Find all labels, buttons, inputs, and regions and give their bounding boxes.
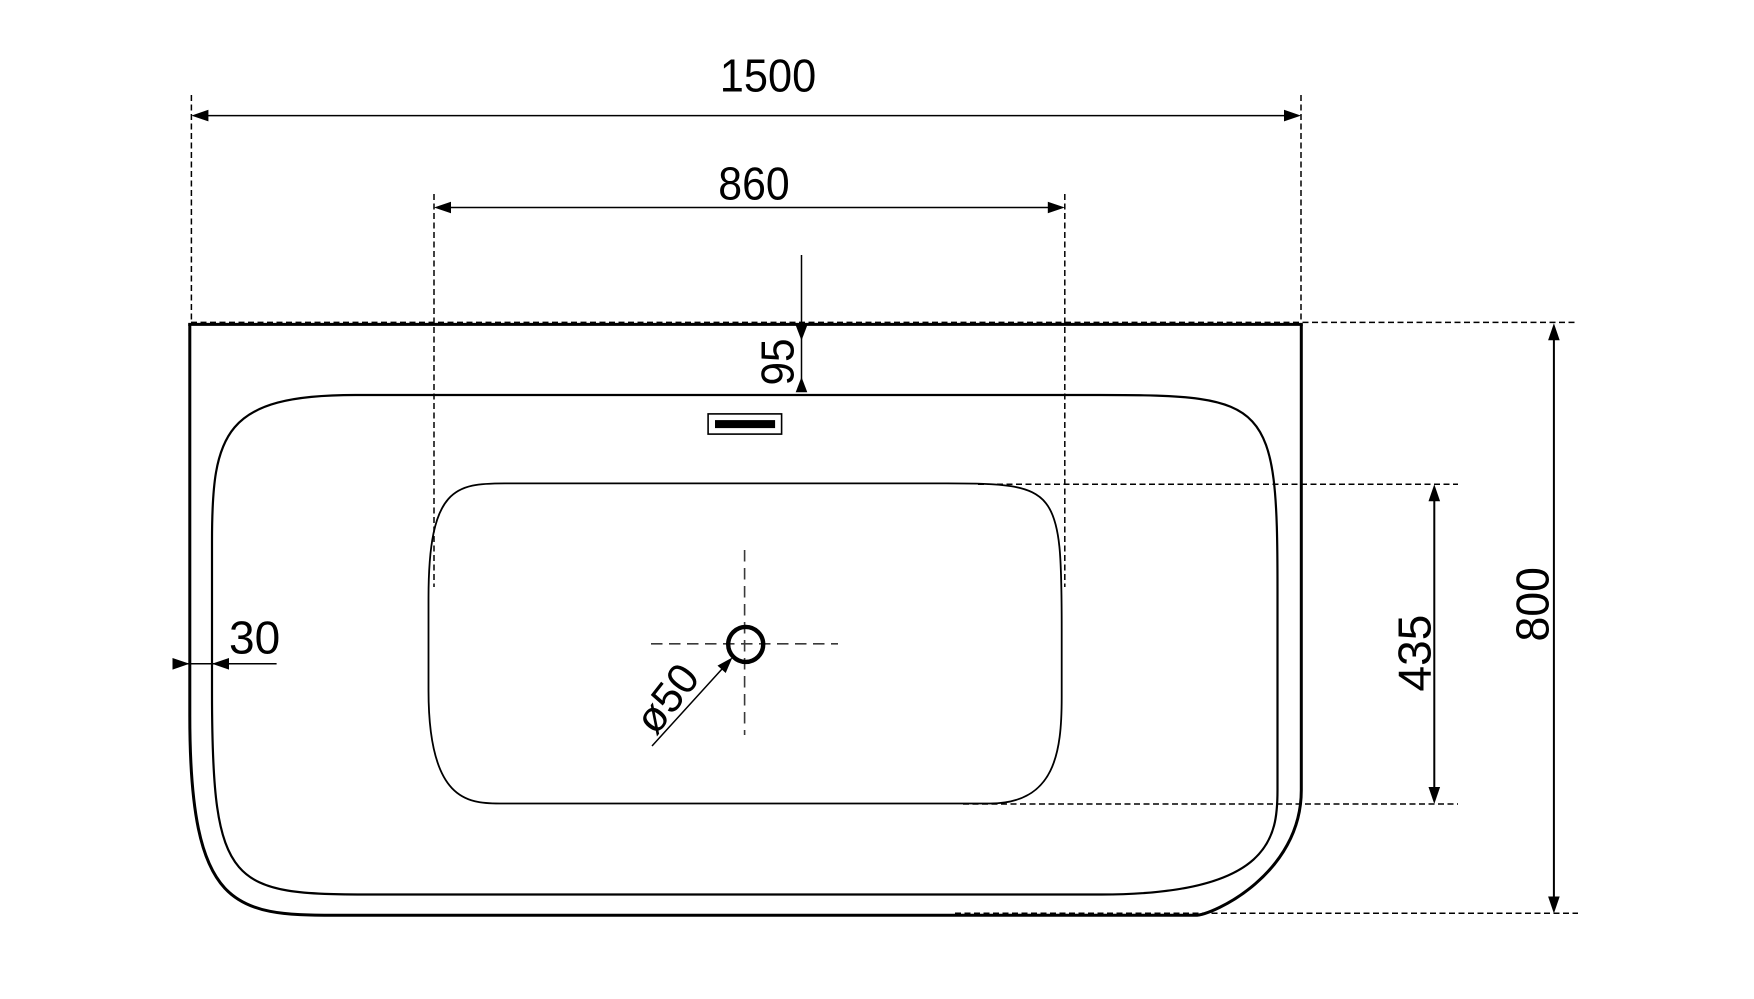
- svg-text:435: 435: [1389, 615, 1441, 692]
- svg-text:30: 30: [229, 612, 280, 664]
- svg-text:95: 95: [752, 339, 804, 386]
- svg-text:860: 860: [718, 158, 789, 210]
- svg-text:1500: 1500: [720, 50, 816, 102]
- svg-text:800: 800: [1506, 567, 1558, 641]
